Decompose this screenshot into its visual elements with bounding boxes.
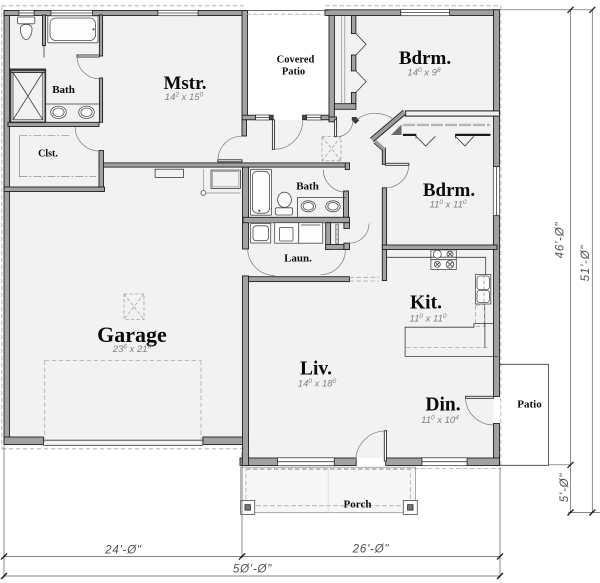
svg-text:110 x 104: 110 x 104 xyxy=(421,415,459,427)
svg-text:140 x 180: 140 x 180 xyxy=(298,378,337,390)
svg-text:Patio: Patio xyxy=(282,67,305,78)
svg-text:Clst.: Clst. xyxy=(38,149,58,160)
svg-text:26'-Ø": 26'-Ø" xyxy=(352,544,390,556)
svg-text:236 x 210: 236 x 210 xyxy=(112,344,152,356)
svg-text:Bath: Bath xyxy=(296,181,319,193)
svg-text:Bath: Bath xyxy=(52,84,75,96)
svg-text:Din.: Din. xyxy=(425,395,460,416)
svg-text:110 x 110: 110 x 110 xyxy=(409,313,446,325)
svg-text:5'-Ø": 5'-Ø" xyxy=(559,473,571,503)
svg-text:Laun.: Laun. xyxy=(284,253,312,265)
svg-text:46'-Ø": 46'-Ø" xyxy=(555,222,567,259)
svg-text:51'-Ø": 51'-Ø" xyxy=(580,245,592,282)
svg-text:Bdrm.: Bdrm. xyxy=(399,48,451,69)
svg-text:Porch: Porch xyxy=(344,499,372,511)
svg-text:Covered: Covered xyxy=(277,55,315,66)
svg-text:5Ø'-Ø": 5Ø'-Ø" xyxy=(233,564,272,576)
svg-text:Kit.: Kit. xyxy=(410,293,442,314)
svg-text:24'-Ø": 24'-Ø" xyxy=(104,545,142,557)
svg-text:Patio: Patio xyxy=(517,399,542,411)
svg-text:Liv.: Liv. xyxy=(300,359,332,380)
svg-text:142 x 150: 142 x 150 xyxy=(165,92,204,104)
svg-text:140 x 98: 140 x 98 xyxy=(407,67,441,79)
svg-text:110 x 110: 110 x 110 xyxy=(429,199,466,211)
svg-text:Bdrm.: Bdrm. xyxy=(423,180,475,201)
